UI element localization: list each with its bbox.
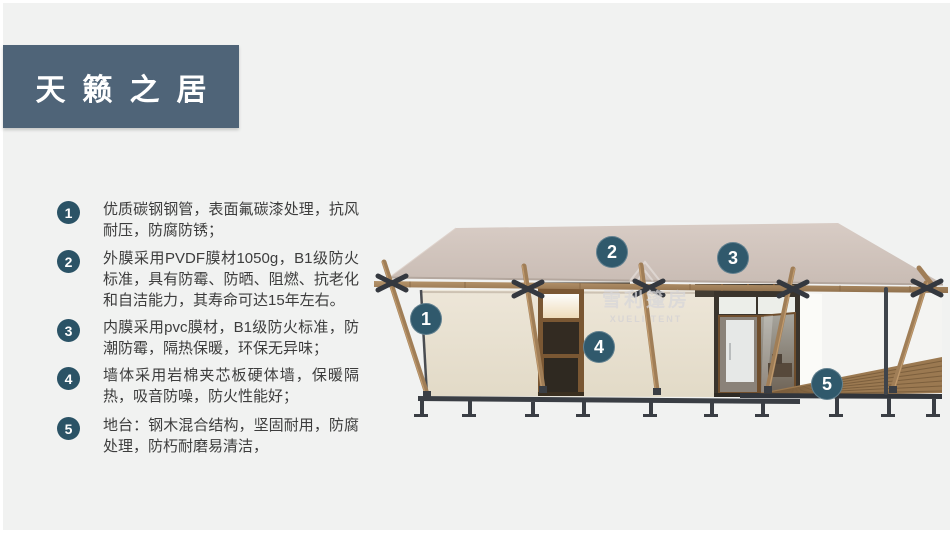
page-title: 天籁之居 [19,65,224,109]
feature-item-4: 4 墙体采用岩棉夹芯板硬体墙，保暖隔热，吸音防噪，防火性能好； [57,365,377,407]
feature-text: 内膜采用pvc膜材，B1级防火标准，防潮防霉，隔热保暖，环保无异味； [103,317,359,359]
slide-background: 天籁之居 1 优质碳钢钢管，表面氟碳漆处理，抗风耐压，防腐防锈； 2 外膜采用P… [3,3,950,530]
page-title-bar: 天籁之居 [3,45,239,128]
feature-item-3: 3 内膜采用pvc膜材，B1级防火标准，防潮防霉，隔热保暖，环保无异味； [57,317,377,359]
tent-render-svg [370,205,950,435]
feature-number-badge: 1 [57,201,80,224]
image-callout-2: 2 [596,236,628,268]
feature-text: 墙体采用岩棉夹芯板硬体墙，保暖隔热，吸音防噪，防火性能好； [103,365,359,407]
feature-text: 优质碳钢钢管，表面氟碳漆处理，抗风耐压，防腐防锈； [103,199,359,241]
feature-number-badge: 3 [57,319,80,342]
tent-illustration: 雪利篷房 XUELI TENT 1 2 3 4 5 [370,205,950,435]
image-callout-5: 5 [811,368,843,400]
image-callout-3: 3 [717,242,749,274]
feature-number-badge: 2 [57,250,80,273]
entry-door [538,288,584,396]
feature-text: 外膜采用PVDF膜材1050g，B1级防火标准，具有防霉、防晒、阻燃、抗老化和自… [103,248,359,311]
feature-number-badge: 4 [57,367,80,390]
roof [390,223,943,285]
feature-item-1: 1 优质碳钢钢管，表面氟碳漆处理，抗风耐压，防腐防锈； [57,199,377,241]
feature-text: 地台：钢木混合结构，坚固耐用，防腐处理，防朽耐磨易清洁， [103,415,359,457]
image-callout-1: 1 [410,303,442,335]
feature-item-5: 5 地台：钢木混合结构，坚固耐用，防腐处理，防朽耐磨易清洁， [57,415,377,457]
image-callout-4: 4 [583,331,615,363]
feature-number-badge: 5 [57,417,80,440]
feature-item-2: 2 外膜采用PVDF膜材1050g，B1级防火标准，具有防霉、防晒、阻燃、抗老化… [57,248,377,311]
